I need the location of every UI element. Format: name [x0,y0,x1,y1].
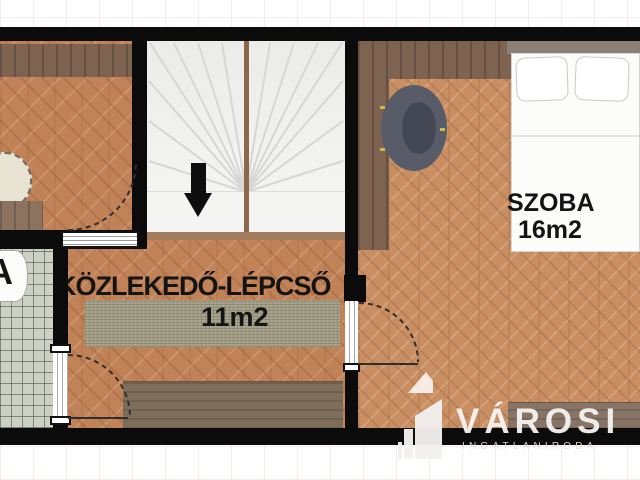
bedroom-door-jamb-bottom [343,363,360,372]
wall-top [0,27,640,41]
stairs-down-arrow [191,163,206,194]
armchair [378,82,452,174]
bathroom-label-partial: A [0,254,13,290]
chair-leg [380,106,385,109]
watermark-buildings-icon [398,396,452,462]
bedroom-door-hinge-block [344,275,366,302]
wardrobe-top-left [0,44,132,77]
bathroom-door-jamb-bottom [50,416,71,425]
watermark-brand: VÁROSI [456,402,620,442]
staircase [147,41,345,240]
stairs-down-arrow-head [184,193,212,217]
bedroom-door-opening [345,301,358,365]
stair-bottom-edge [147,232,345,240]
chair-leg [380,148,385,151]
window-room1 [61,231,139,248]
staircase-fan [147,41,345,240]
stair-divider [244,41,249,232]
bedroom-room-label: SZOBA [507,191,595,216]
wall-corridor-bedroom [345,27,358,445]
corridor-room-label: KÖZLEKEDŐ-LÉPCSŐ [57,273,331,300]
bedroom-wardrobe-top [358,41,512,79]
pillow-left [515,56,569,102]
corridor-sideboard [123,381,343,429]
floor-plan: A KÖZLEKEDŐ-LÉPCSŐ 11m2 SZOBA 16m2 [0,0,640,480]
bathroom-door-opening [53,351,68,417]
wall-room1-stairs [132,40,147,249]
duvet-fold [512,135,639,137]
watermark-subtitle: INGATLANIRODA [462,441,598,452]
bathroom-door-jamb-top [50,344,71,353]
corridor-area-label: 11m2 [201,304,269,331]
pillow-right [574,56,630,102]
chair-leg [440,128,445,131]
bedroom-area-label: 16m2 [518,218,582,243]
counter [0,201,43,233]
